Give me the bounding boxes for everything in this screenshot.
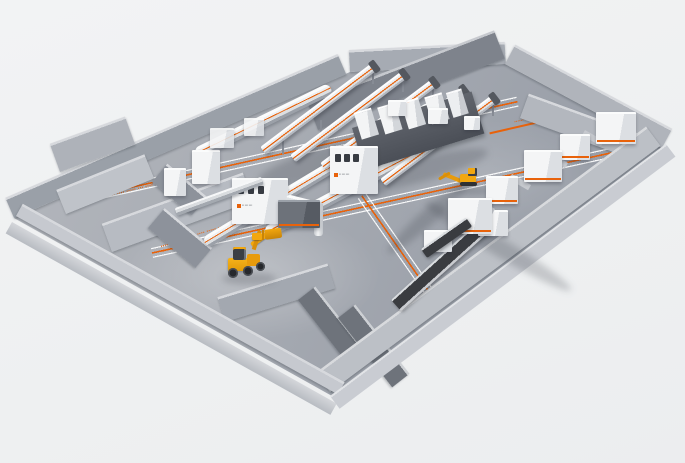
support-post: [282, 140, 284, 154]
forklift-mast: [262, 230, 264, 240]
handler-tracks: [460, 182, 477, 186]
loader-wheel: [228, 268, 238, 278]
plant-3d-render: ▪▪▪▪ ▪▪▪▪▪ ▪▪▪ ▪▪▪▪ ▪▪▪▪▪ ▪▪▪ ▪▪▪▪ ▪▪▪▪ …: [0, 0, 685, 463]
machine-unit: [164, 168, 186, 196]
brand-badge: ▪▪ ▪▪▪ ▪▪▪: [334, 172, 360, 177]
machine-unit: [192, 150, 220, 184]
machine-unit: [464, 116, 480, 130]
handler-cab: [468, 168, 477, 176]
cabin-window: [353, 154, 359, 162]
cabin-window: [335, 154, 341, 162]
material-handler: [438, 164, 486, 190]
machine-unit: [278, 200, 320, 228]
control-cabin: ▪▪ ▪▪▪ ▪▪▪: [330, 146, 378, 194]
forklift: [250, 230, 266, 242]
loader-wheel: [243, 266, 253, 276]
loader-cab: [233, 247, 246, 260]
machine-unit: [428, 108, 448, 124]
machine-unit: [524, 150, 562, 182]
forklift-body: [252, 233, 262, 240]
loader-bucket: [264, 228, 282, 240]
machine-unit: [560, 134, 590, 160]
hopper-unit: [446, 88, 469, 118]
machine-unit: [210, 128, 234, 148]
cabin-window: [258, 186, 264, 194]
cabin-window: [344, 154, 350, 162]
machine-unit: [388, 100, 406, 116]
brand-badge: ▪▪ ▪▪▪ ▪▪▪: [237, 203, 267, 208]
machine-unit: [244, 118, 264, 136]
machine-unit: [596, 112, 636, 144]
loader-wheel: [256, 262, 265, 271]
